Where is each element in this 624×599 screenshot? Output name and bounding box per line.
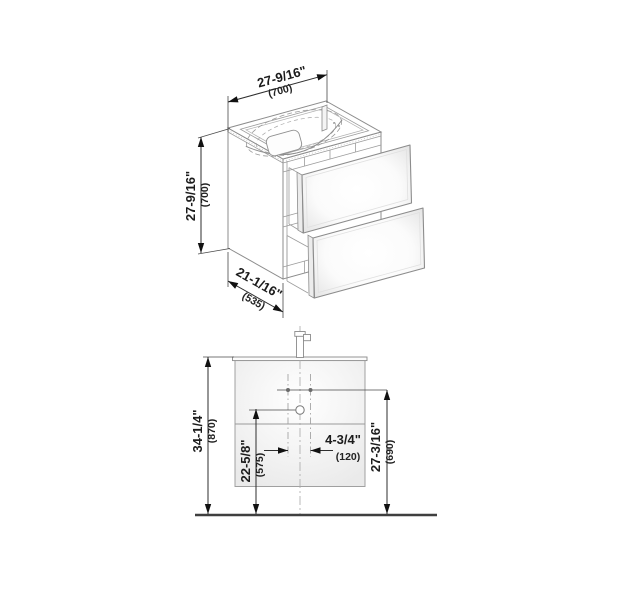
faucet [295,332,311,358]
right-hole-dot [309,388,313,392]
drain-hole [296,406,304,414]
dim-iso-height: 27-9/16" (700) [183,129,230,255]
hole-spacing-label: 4-3/4" [325,432,361,447]
side-holes-height-label: 27-3/16" [368,422,383,472]
left-hole-dot [286,388,290,392]
iso-height-label: 27-9/16" [183,171,198,221]
technical-drawing-page: 27-9/16" (700) 27-9/16" (700) 21-1/16" (… [0,0,624,599]
front-view: 34-1/4" (870) 22-5/8" (575) 27-3/16" (69… [190,326,437,515]
overall-height-mm-label: (870) [206,419,218,444]
drain-height-mm-label: (575) [254,453,266,478]
drain-height-label: 22-5/8" [238,439,253,482]
hole-spacing-mm-label: (120) [336,451,361,463]
vanity-dimension-drawing: 27-9/16" (700) 27-9/16" (700) 21-1/16" (… [0,0,624,599]
dim-overall-height: 34-1/4" (870) [190,357,234,514]
iso-view: 27-9/16" (700) 27-9/16" (700) 21-1/16" (… [183,63,425,318]
overall-height-label: 34-1/4" [190,409,205,452]
side-holes-height-mm-label: (690) [384,440,396,465]
dim-side-holes-height: 27-3/16" (690) [368,390,396,514]
iso-height-mm-label: (700) [199,183,211,208]
